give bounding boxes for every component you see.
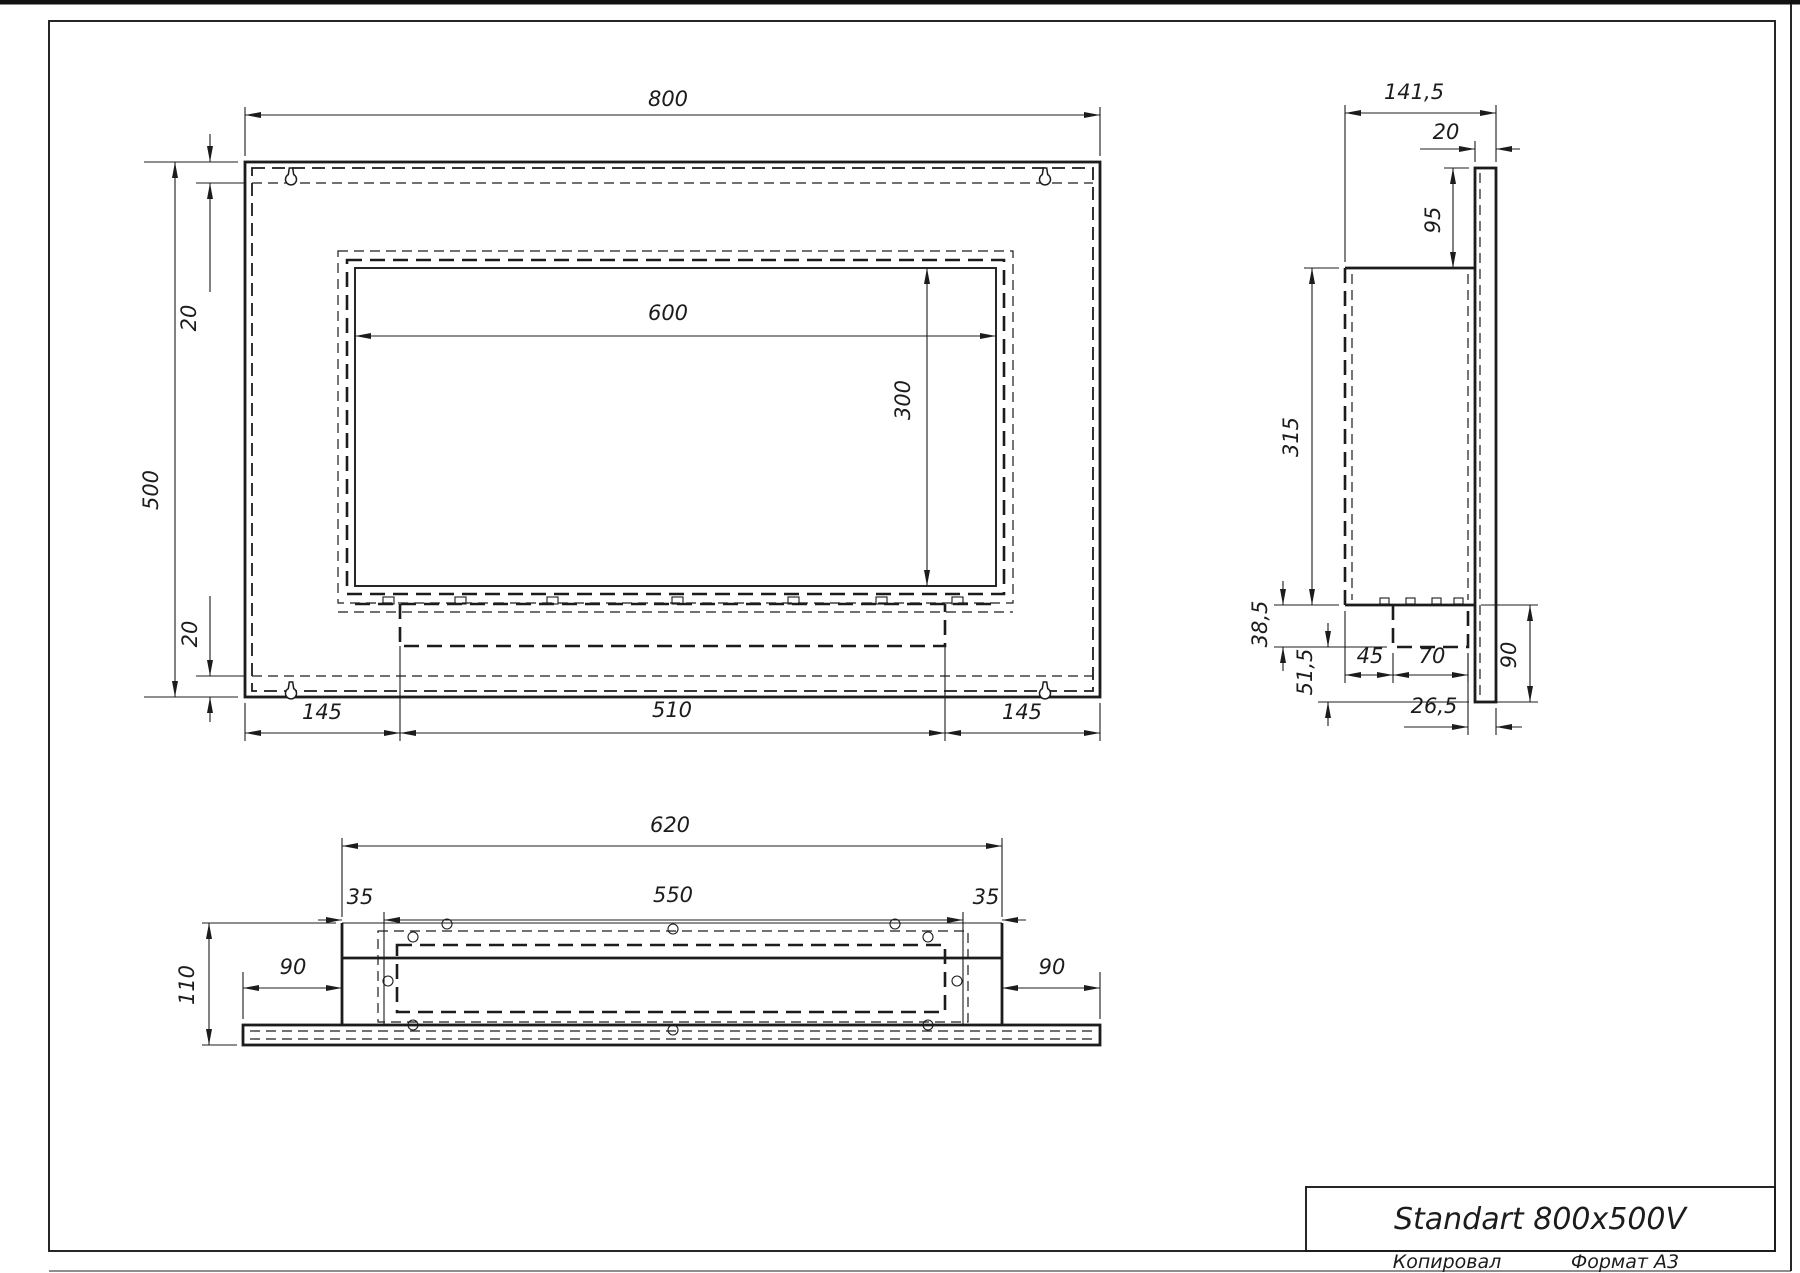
drawing-title: Standart 800x500V [1394, 1202, 1689, 1237]
screw-holes [383, 919, 962, 1035]
dim-tray-depth: 38,5 [1248, 601, 1272, 648]
dim-wing-right: 90 [1039, 955, 1066, 979]
dim-box-width: 620 [650, 813, 690, 837]
dim-top-margin: 20 [177, 305, 201, 332]
dim-bottom-left: 145 [302, 700, 342, 724]
sheet-format-label: Формат А3 [1571, 1251, 1679, 1273]
tray-side-hidden-outline [1393, 605, 1468, 647]
dim-bottom-right: 145 [1002, 700, 1042, 724]
tray-hidden-outline [400, 604, 945, 646]
keyhole-mount-icon [1040, 682, 1051, 699]
dim-total-depth-bottom: 110 [175, 965, 199, 1005]
front-view: 800 500 20 20 600 300 145 510 145 [139, 87, 1100, 741]
dim-total-depth: 141,5 [1384, 80, 1444, 104]
dim-bottom-center: 510 [652, 698, 692, 722]
drawing-sheet: 800 500 20 20 600 300 145 510 145 [0, 0, 1800, 1273]
drawing-border [49, 21, 1775, 1251]
dim-body-height: 315 [1279, 417, 1303, 457]
dim-wing-left: 90 [280, 955, 307, 979]
keyhole-mount-icon [1040, 168, 1051, 185]
dim-panel-width: 800 [648, 87, 688, 111]
dim-plate-thickness: 20 [1433, 120, 1460, 144]
window-top-edge [0, 0, 1800, 5]
panel-outline [245, 162, 1100, 697]
dim-front-to-tray: 45 [1357, 644, 1384, 668]
dim-plate-top-offset: 95 [1421, 207, 1445, 234]
copied-by-label: Копировал [1393, 1251, 1502, 1273]
title-block: Standart 800x500V Копировал Формат А3 [1306, 1187, 1775, 1273]
burner-opening-dashed [397, 945, 945, 1012]
keyhole-mount-icon [286, 682, 297, 699]
dim-opening-width: 600 [648, 301, 688, 325]
dim-inner-width: 550 [653, 883, 693, 907]
dim-tray-to-plate-face: 26,5 [1411, 694, 1458, 718]
dim-bottom-margin: 20 [178, 621, 202, 648]
dim-plate-bottom-drop: 90 [1497, 642, 1521, 669]
dim-opening-height: 300 [891, 380, 915, 420]
keyhole-mount-icon [286, 168, 297, 185]
side-view: 141,5 20 95 315 38,5 51,5 45 70 [1248, 80, 1538, 735]
dim-tray-width: 70 [1419, 644, 1446, 668]
back-plate-outline [1475, 168, 1496, 702]
dim-panel-height: 500 [139, 470, 163, 510]
side-clips [1380, 598, 1463, 604]
technical-drawing: 800 500 20 20 600 300 145 510 145 [0, 0, 1800, 1273]
dim-margin-left: 35 [347, 885, 374, 909]
dim-tray-to-plate-bottom: 51,5 [1293, 649, 1317, 696]
dim-margin-right: 35 [973, 885, 1000, 909]
bottom-view: 620 550 35 35 110 90 90 [175, 813, 1100, 1045]
